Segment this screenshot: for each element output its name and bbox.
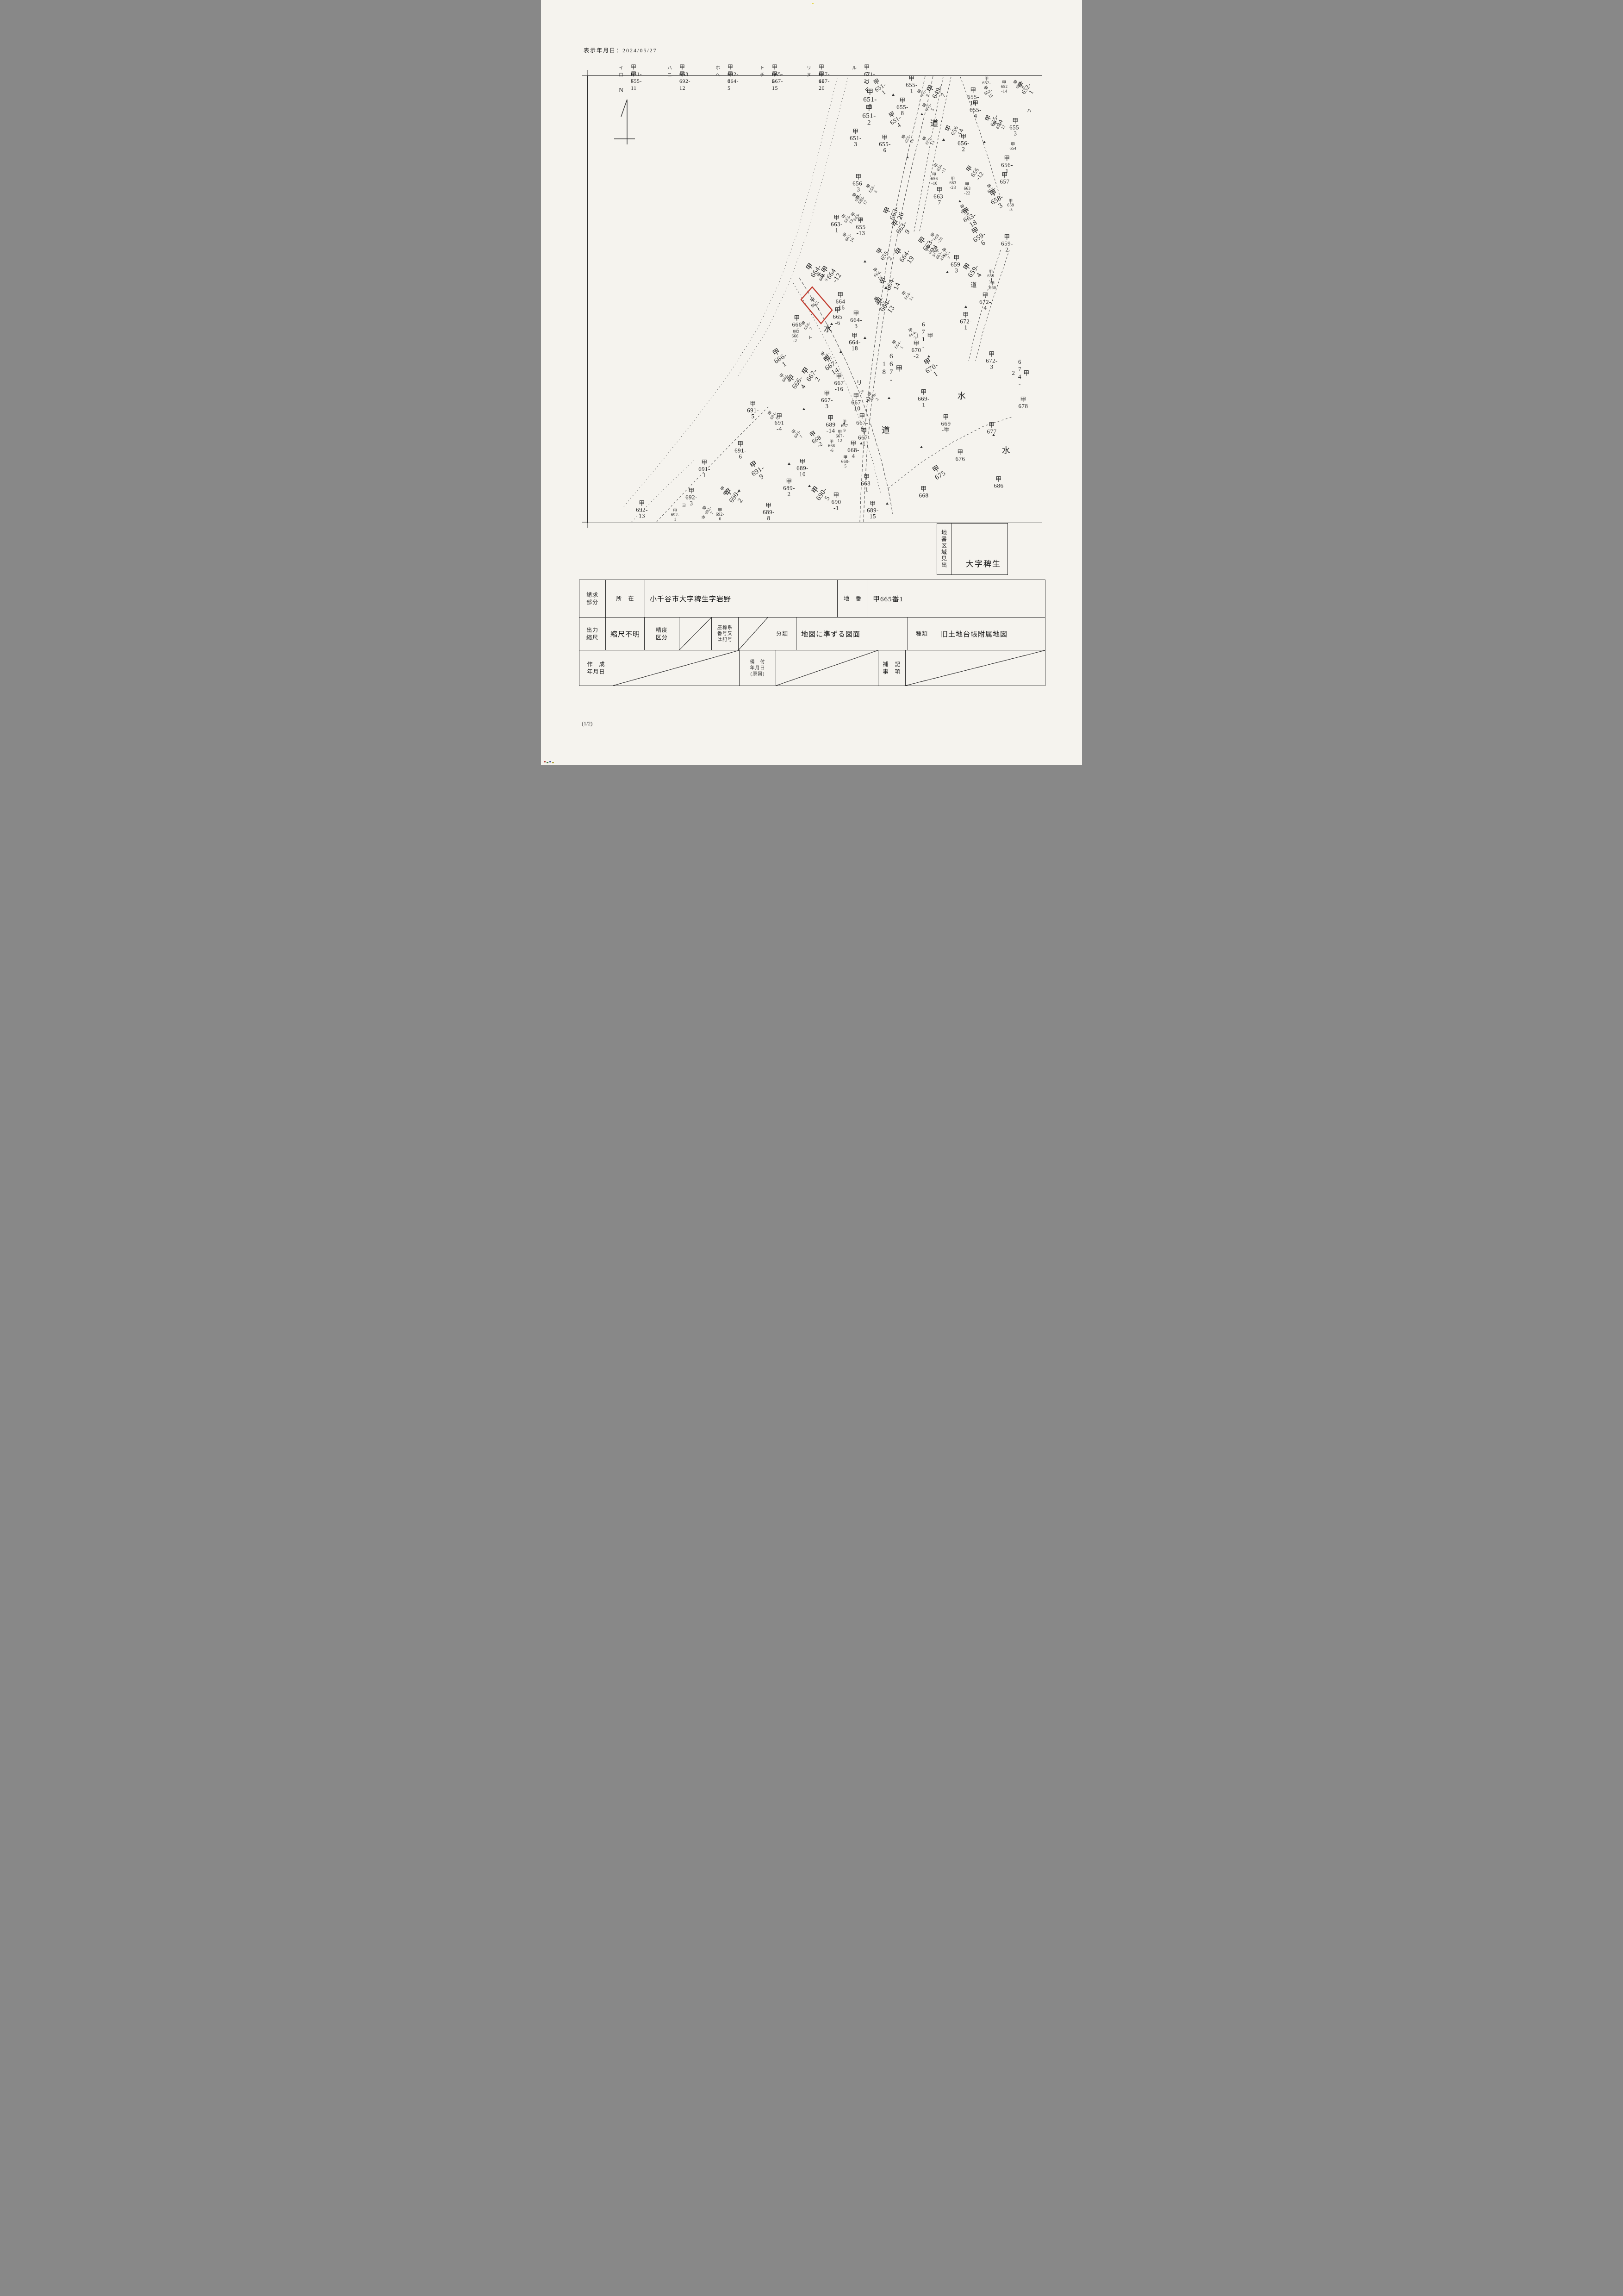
original-date-label: 備 付 年月日 (原図) <box>739 650 776 686</box>
original-date-empty-cell <box>776 650 878 686</box>
north-label: N <box>619 87 623 94</box>
parcel-label: 甲692-13 <box>636 500 648 519</box>
parcel-label: 甲655-1 <box>906 75 918 94</box>
parcel-label: 甲663 -22 <box>964 182 971 195</box>
lot-number-label: 地 番 <box>837 580 868 617</box>
parcel-label: 甲689-2 <box>783 479 795 498</box>
parcel-label: 甲691-1 <box>698 460 710 479</box>
location-value: 小千谷市大字稗生字岩野 <box>645 580 837 617</box>
parcel-label: 甲666 -2 <box>792 330 799 343</box>
parcel-label: 甲667-12 <box>836 430 844 443</box>
parcel-label: 甲668 -6 <box>828 440 835 453</box>
parcel-label: 甲656-3 <box>852 174 864 193</box>
parcel-label: ト <box>808 336 813 340</box>
creation-date-label: 作 成 年月日 <box>579 650 613 686</box>
parcel-label: 水 <box>1002 447 1011 455</box>
parcel-label: 甲652 -14 <box>1001 81 1008 94</box>
parcel-label: ハ <box>1027 109 1032 113</box>
parcel-label: 甲664-18 <box>849 333 861 352</box>
parcel-label: 甲667-18 <box>880 353 902 384</box>
parcel-label: 甲676 <box>956 449 965 462</box>
notes-empty-cell <box>905 650 1045 686</box>
parcel-label: 甲667 -16 <box>834 374 844 393</box>
district-title-box: 地番区域見出 大字稗生 <box>937 523 1008 575</box>
parcel-label: 甲655-3 <box>1009 118 1021 137</box>
output-scale-label: 出力 縮尺 <box>579 617 605 650</box>
page-indicator: (1/2) <box>582 720 592 727</box>
parcel-label: 甲668 <box>919 486 929 498</box>
creation-date-empty-cell <box>613 650 739 686</box>
legend-mark: ル <box>852 64 857 71</box>
parcel-label: 甲655-4 <box>970 100 982 119</box>
parcel-label: 甲692-6 <box>716 508 724 521</box>
parcel-label: 甲655-6 <box>879 135 891 154</box>
parcel-label: 甲689-15 <box>867 501 879 520</box>
parcel-label: 甲656-2 <box>958 134 970 153</box>
classification-label: 分類 <box>768 617 796 650</box>
parcel-label: 甲691-5 <box>747 401 759 420</box>
parcel-label: 甲672-4 <box>979 293 991 312</box>
parcel-label: 甲690 -1 <box>832 493 841 512</box>
scan-artifact <box>552 762 554 763</box>
frame-ticks <box>582 70 587 528</box>
parcel-label: 甲689-8 <box>763 503 775 522</box>
parcel-label: 道 <box>882 426 890 435</box>
legend-mark: ハ <box>667 64 672 71</box>
parcel-label: 甲667-3 <box>821 391 833 410</box>
scale-value: 縮尺不明 <box>605 617 644 650</box>
parcel-label: 甲651-3 <box>850 129 862 148</box>
parcel-label: 甲667 -10 <box>852 393 861 412</box>
kind-label: 種類 <box>908 617 936 650</box>
parcel-label: 甲657 <box>1000 172 1010 184</box>
location-label: 所 在 <box>605 580 645 617</box>
lot-number-value: 甲665番1 <box>868 580 1045 617</box>
parcel-label: 甲677 <box>987 422 997 434</box>
parcel-label: 甲672-1 <box>960 312 972 331</box>
legend-mark: ホ <box>715 64 720 71</box>
parcel-label: 甲651-2 <box>862 106 876 127</box>
parcel-label: 甲691-6 <box>734 441 746 460</box>
parcel-label: ヨ <box>682 503 686 507</box>
parcel-label: 甲691 -4 <box>775 413 784 432</box>
precision-empty-cell <box>679 617 711 650</box>
scan-artifact <box>812 3 814 4</box>
request-part-label: 請求 部分 <box>579 580 605 617</box>
parcel-label: 甲678 <box>1019 396 1028 409</box>
parcel-label: 甲668-5 <box>841 455 850 468</box>
parcel-label: 甲669-1 <box>918 389 930 408</box>
parcel-label: 甲689-10 <box>796 459 808 478</box>
info-table: 請求 部分 所 在 小千谷市大字稗生字岩野 地 番 甲665番1 出力 縮尺 縮… <box>579 580 1045 686</box>
parcel-label: 甲667-1 <box>858 428 870 447</box>
parcel-label: 甲672-3 <box>986 351 998 370</box>
scan-artifact <box>547 762 548 763</box>
parcel-label: 甲659 -5 <box>1007 199 1014 212</box>
parcel-label: 甲670 -2 <box>912 341 921 360</box>
parcel-label: 甲660 <box>989 282 996 291</box>
parcel-label: リ <box>856 380 863 386</box>
parcel-label: 甲692-3 <box>685 488 697 507</box>
parcel-label: 水 <box>824 325 833 334</box>
parcel-label: 甲669 -甲 <box>941 414 951 433</box>
district-name: 大字稗生 <box>966 557 1001 569</box>
legend-mark: イ <box>619 64 623 71</box>
notes-label: 補 記 事 項 <box>878 650 905 686</box>
parcel-label: 甲663-7 <box>933 187 945 206</box>
parcel-label: 水 <box>958 392 966 401</box>
parcel-label: 甲686 <box>994 476 1004 488</box>
parcel-label: 甲689 -14 <box>826 415 836 434</box>
parcel-label: 甲664-3 <box>850 311 862 330</box>
parcel-label: 甲665 -6 <box>833 307 843 326</box>
parcel-label: 甲674-2 <box>1010 358 1029 388</box>
parcel-label: 甲659-2 <box>1001 234 1013 253</box>
parcel-label: 甲663 -23 <box>950 177 957 190</box>
parcel-label: 甲655 -13 <box>856 218 866 237</box>
display-date-label: 表示年月日：2024/05/27 <box>584 46 657 54</box>
precision-class-label: 精度 区分 <box>644 617 679 650</box>
parcel-label: 甲692-1 <box>671 509 679 522</box>
legend-mark: ト <box>760 64 765 71</box>
parcel-label: 甲668-1 <box>861 474 873 493</box>
parcel-label: ホ <box>701 515 706 519</box>
legend-mark: リ <box>807 64 811 71</box>
parcel-label: 道 <box>930 119 939 128</box>
kind-value: 旧土地台帳附属地図 <box>936 617 1045 650</box>
scan-artifact <box>544 761 546 762</box>
classification-value: 地図に準ずる図面 <box>796 617 908 650</box>
parcel-label: 甲656 -10 <box>931 173 938 186</box>
parcel-label: 道 <box>970 282 977 288</box>
scan-artifact <box>549 761 551 762</box>
district-box-side-label: 地番区域見出 <box>937 524 951 574</box>
coordinate-empty-cell <box>738 617 768 650</box>
parcel-label: 甲654 <box>1010 143 1017 151</box>
parcel-label: 甲663-1 <box>831 215 843 234</box>
cadastral-map-page: 表示年月日：2024/05/27 イ甲651-7ハ甲653ホ甲692-8ト甲66… <box>541 0 1082 765</box>
coordinate-system-label: 座標系 番号又 は記号 <box>711 617 738 650</box>
